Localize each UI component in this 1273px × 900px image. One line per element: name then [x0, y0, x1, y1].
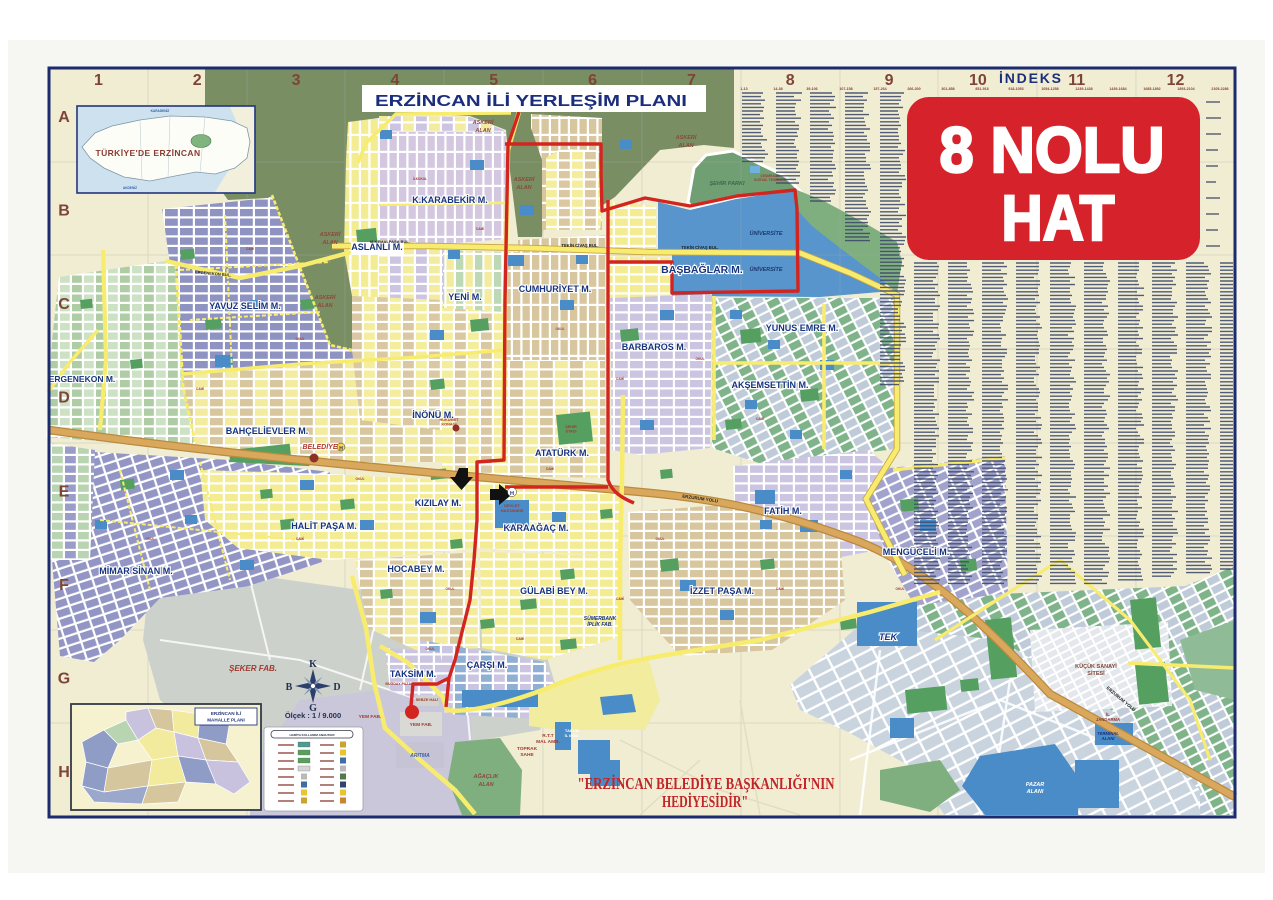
svg-text:TEKİN CİVAŞ BUL.: TEKİN CİVAŞ BUL.	[681, 245, 718, 250]
svg-text:R.T.T: R.T.T	[542, 733, 554, 739]
svg-text:OKUL: OKUL	[655, 537, 664, 541]
svg-text:2105-2286: 2105-2286	[1211, 87, 1228, 91]
svg-text:ALAN: ALAN	[515, 185, 532, 191]
svg-text:KÜÇÜK SANAYİ: KÜÇÜK SANAYİ	[1075, 663, 1117, 670]
svg-text:12: 12	[1167, 72, 1185, 89]
svg-text:KONAĞI: KONAĞI	[441, 422, 456, 427]
svg-text:CAMİ: CAMİ	[196, 387, 204, 391]
svg-text:9: 9	[885, 72, 894, 89]
svg-text:OKUL: OKUL	[425, 647, 434, 651]
svg-text:KARAAĞAÇ M.: KARAAĞAÇ M.	[504, 522, 569, 533]
svg-text:CAMİ: CAMİ	[546, 467, 554, 471]
svg-text:HARİTA KULLANIM ANAHTARI: HARİTA KULLANIM ANAHTARI	[289, 733, 334, 737]
svg-text:107-158: 107-158	[839, 87, 852, 91]
svg-text:İZZET PAŞA M.: İZZET PAŞA M.	[690, 586, 754, 596]
svg-text:CAMİ: CAMİ	[516, 637, 524, 641]
svg-text:BARBAROS M.: BARBAROS M.	[622, 342, 687, 352]
svg-text:ATATÜRK M.: ATATÜRK M.	[535, 448, 589, 458]
svg-text:YEM FAB.: YEM FAB.	[359, 714, 382, 720]
svg-text:Ölçek : 1 / 9.000: Ölçek : 1 / 9.000	[285, 711, 341, 720]
svg-text:ŞEHİR: ŞEHİR	[565, 425, 577, 429]
svg-text:OKUL: OKUL	[445, 587, 454, 591]
svg-text:OKUL: OKUL	[895, 587, 904, 591]
svg-text:G: G	[58, 671, 70, 688]
svg-text:AĞAÇLIK: AĞAÇLIK	[472, 772, 499, 780]
svg-text:PAZAR: PAZAR	[1026, 782, 1045, 788]
svg-text:H: H	[510, 491, 514, 497]
svg-text:CAMİ: CAMİ	[776, 587, 784, 591]
svg-text:İL MÜD.: İL MÜD.	[565, 733, 580, 738]
svg-text:SAHE: SAHE	[520, 752, 534, 758]
svg-text:BELEDİYE: BELEDİYE	[302, 443, 337, 451]
svg-text:4: 4	[390, 72, 399, 89]
svg-text:7: 7	[687, 72, 696, 89]
svg-text:ALAN: ALAN	[477, 782, 494, 788]
svg-text:BAHÇELİEVLER M.: BAHÇELİEVLER M.	[226, 426, 309, 436]
svg-text:İLKOKUL: İLKOKUL	[413, 177, 427, 181]
svg-text:ÜNİVERSİTE: ÜNİVERSİTE	[749, 230, 782, 237]
svg-text:E: E	[59, 483, 70, 500]
svg-text:M.KEMALPAŞA BUL.: M.KEMALPAŞA BUL.	[370, 239, 410, 244]
svg-text:HEDİYESİDİR": HEDİYESİDİR"	[662, 792, 748, 811]
svg-text:11: 11	[1068, 72, 1085, 89]
svg-text:HOCABEY M.: HOCABEY M.	[387, 564, 444, 574]
svg-text:BAŞBAĞLAR M.: BAŞBAĞLAR M.	[661, 263, 743, 276]
svg-text:CAMİ: CAMİ	[616, 597, 624, 601]
svg-text:GÜLABİ BEY M.: GÜLABİ BEY M.	[520, 586, 588, 596]
svg-text:JANDARMA: JANDARMA	[1096, 717, 1120, 722]
svg-text:ASKERİ: ASKERİ	[314, 294, 336, 301]
svg-text:A: A	[58, 109, 70, 126]
svg-text:ŞEHİR PARKI: ŞEHİR PARKI	[709, 180, 745, 187]
svg-text:ALAN: ALAN	[316, 303, 333, 309]
svg-text:D: D	[333, 682, 340, 693]
svg-text:1054-1258: 1054-1258	[1041, 87, 1058, 91]
svg-text:FATİH M.: FATİH M.	[764, 506, 802, 516]
svg-text:ALANI: ALANI	[1101, 736, 1116, 741]
svg-text:2: 2	[193, 72, 202, 89]
svg-text:K: K	[309, 659, 317, 670]
svg-text:3: 3	[292, 72, 301, 89]
svg-text:ÇARŞI M.: ÇARŞI M.	[467, 660, 508, 670]
svg-text:H: H	[339, 446, 343, 452]
svg-text:ÜNİVERSİTE: ÜNİVERSİTE	[749, 266, 782, 273]
svg-text:AKDENİZ: AKDENİZ	[123, 186, 137, 190]
svg-text:YEM FAB.: YEM FAB.	[410, 722, 433, 728]
svg-text:39-106: 39-106	[806, 87, 817, 91]
svg-text:CAMİ: CAMİ	[246, 247, 254, 251]
svg-text:TOPRAK: TOPRAK	[517, 746, 538, 752]
svg-text:CAMİ: CAMİ	[756, 417, 764, 421]
svg-text:SÜMERBANK: SÜMERBANK	[584, 615, 617, 622]
svg-text:CAMİ: CAMİ	[296, 537, 304, 541]
svg-text:MAHALLE PLANI: MAHALLE PLANI	[207, 718, 245, 723]
svg-text:ALAN: ALAN	[677, 143, 694, 149]
svg-text:D: D	[58, 390, 70, 407]
svg-text:1-13: 1-13	[740, 87, 747, 91]
svg-text:YAVUZ SELİM M.: YAVUZ SELİM M.	[209, 301, 281, 311]
svg-text:SOSYAL TESİSLERİ: SOSYAL TESİSLERİ	[754, 178, 786, 182]
svg-text:MENGÜCELİ M.: MENGÜCELİ M.	[883, 547, 950, 557]
svg-text:YUNUS EMRE M.: YUNUS EMRE M.	[766, 323, 839, 333]
svg-text:AKŞEMSETTİN M.: AKŞEMSETTİN M.	[731, 380, 808, 390]
svg-text:ERZİNCAN İLİ YERLEŞİM PLANI: ERZİNCAN İLİ YERLEŞİM PLANI	[375, 93, 687, 110]
svg-text:CUMHURİYET M.: CUMHURİYET M.	[519, 284, 592, 294]
svg-text:OKUL: OKUL	[145, 537, 154, 541]
svg-text:8 NOLU: 8 NOLU	[940, 114, 1165, 186]
svg-text:ALAN: ALAN	[474, 128, 491, 134]
svg-text:ALANI: ALANI	[1026, 789, 1044, 795]
svg-text:1: 1	[94, 72, 103, 89]
svg-text:HASTANESİ: HASTANESİ	[501, 508, 524, 513]
svg-text:10: 10	[969, 72, 987, 89]
svg-text:ASKERİ: ASKERİ	[319, 231, 341, 238]
svg-text:1685-1892: 1685-1892	[1143, 87, 1160, 91]
svg-text:STADI: STADI	[565, 430, 576, 434]
svg-text:KIZILAY M.: KIZILAY M.	[415, 498, 462, 508]
svg-text:OKUL: OKUL	[295, 337, 304, 341]
svg-text:B: B	[286, 682, 293, 693]
svg-text:F: F	[59, 577, 69, 594]
svg-text:266-300: 266-300	[907, 87, 920, 91]
svg-text:CAMİ: CAMİ	[616, 377, 624, 381]
svg-text:İPLİK FAB.: İPLİK FAB.	[587, 621, 613, 628]
svg-text:OKUL: OKUL	[555, 327, 564, 331]
svg-text:8: 8	[786, 72, 795, 89]
svg-text:CAMİ: CAMİ	[476, 227, 484, 231]
svg-text:ERGENEKON M.: ERGENEKON M.	[49, 374, 116, 384]
svg-text:K.KARABEKİR M.: K.KARABEKİR M.	[412, 195, 488, 205]
svg-text:KARADENİZ: KARADENİZ	[151, 109, 170, 113]
svg-text:MİMAR SİNAN M.: MİMAR SİNAN M.	[99, 566, 173, 576]
svg-text:"ERZİNCAN BELEDİYE BAŞKANLIĞI': "ERZİNCAN BELEDİYE BAŞKANLIĞI'NIN	[578, 774, 835, 793]
svg-text:ASKERİ: ASKERİ	[472, 119, 494, 126]
svg-text:H: H	[58, 764, 70, 781]
svg-text:OKUL: OKUL	[355, 477, 364, 481]
svg-text:OKUL: OKUL	[695, 357, 704, 361]
svg-text:HALİT PAŞA M.: HALİT PAŞA M.	[291, 521, 357, 531]
svg-text:ŞEKER FAB.: ŞEKER FAB.	[229, 664, 277, 673]
svg-text:ASKERİ: ASKERİ	[513, 176, 535, 183]
svg-text:HAT: HAT	[1002, 182, 1115, 254]
svg-text:İNDEKS: İNDEKS	[999, 70, 1063, 86]
svg-text:B: B	[58, 202, 70, 219]
svg-text:ASKERİ: ASKERİ	[675, 134, 697, 141]
svg-text:TEK: TEK	[879, 632, 899, 642]
svg-text:YENİ M.: YENİ M.	[448, 292, 482, 302]
svg-text:BUĞDAY PAZARI: BUĞDAY PAZARI	[385, 681, 414, 686]
svg-text:6: 6	[588, 72, 597, 89]
svg-text:1439-1684: 1439-1684	[1109, 87, 1126, 91]
svg-text:SİTESİ: SİTESİ	[1087, 670, 1105, 677]
svg-text:TÜRKİYE'DE ERZİNCAN: TÜRKİYE'DE ERZİNCAN	[95, 148, 200, 158]
svg-text:TEKİN CİVAŞ BUL.: TEKİN CİVAŞ BUL.	[561, 243, 598, 248]
svg-text:HÜKÜMET: HÜKÜMET	[440, 417, 460, 422]
svg-text:ERZİNCAN İLİ: ERZİNCAN İLİ	[211, 710, 241, 716]
svg-text:14-38: 14-38	[773, 87, 782, 91]
svg-text:5: 5	[489, 72, 498, 89]
svg-text:C: C	[58, 296, 70, 313]
svg-text:ALAN: ALAN	[321, 240, 338, 246]
svg-text:918-1053: 918-1053	[1008, 87, 1023, 91]
svg-text:TAKSİM M.: TAKSİM M.	[390, 669, 436, 679]
svg-text:ARITMA: ARITMA	[409, 753, 430, 759]
svg-text:301-858: 301-858	[941, 87, 954, 91]
svg-text:MAL AMB.: MAL AMB.	[536, 739, 560, 745]
svg-text:SEBZE HALİ: SEBZE HALİ	[416, 698, 439, 702]
